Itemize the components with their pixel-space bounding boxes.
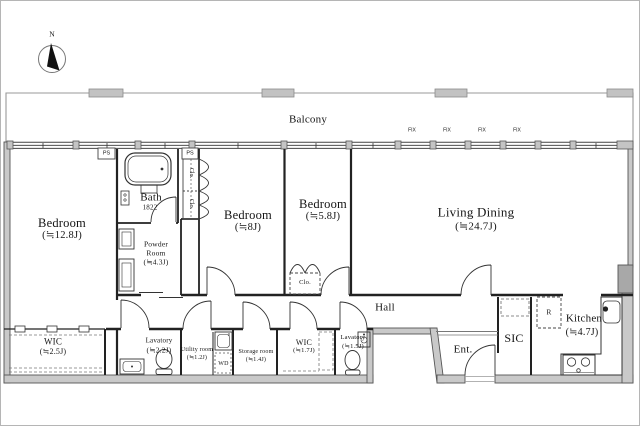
storage-room-label: Storage room — [239, 349, 274, 355]
living-dining-size: (≒24.7J) — [455, 222, 497, 233]
balcony-label: Balcony — [289, 115, 327, 126]
fix-window-label-1: FIX — [408, 129, 416, 134]
toilet-east-icon — [345, 351, 360, 376]
closet-label-2: Clo. — [188, 199, 194, 209]
bedroom-west-size: (≒12.8J) — [42, 231, 82, 242]
utility-room-label: Utility room — [181, 347, 213, 353]
bedroom-east-size: (≒5.8J) — [306, 212, 340, 223]
powder-room-size: (≒4.3J) — [144, 258, 169, 266]
wic-east-size: (≒1.7J) — [293, 348, 315, 355]
entrance-label: Ent. — [454, 345, 473, 356]
sic-label: SIC — [504, 332, 523, 344]
floor-plan: N Balcony Bedroom (≒12.8J) Bath 1822 Pow… — [0, 0, 640, 426]
fix-window-label-4: FIX — [513, 129, 521, 134]
stove-icon — [563, 355, 595, 375]
fix-window-label-3: FIX — [478, 129, 486, 134]
refrigerator-label: R — [546, 308, 551, 316]
closet-label-1: Clo. — [188, 168, 194, 178]
wic-west-label: WIC — [44, 338, 62, 347]
fix-window-label-2: FIX — [443, 129, 451, 134]
lavatory-west-sink-icon — [120, 359, 144, 374]
kitchen-size: (≒4.7J) — [566, 328, 599, 338]
utility-room-size: (≒1.2J) — [187, 355, 207, 361]
entry-step-lines — [436, 332, 498, 336]
lavatory-west-label: Lavatory — [146, 338, 173, 345]
pipe-space-label-2: PS — [186, 151, 193, 157]
hall-label: Hall — [375, 303, 395, 314]
lavatory-west-size: (≒2.2J) — [147, 346, 172, 354]
entrance-sill — [465, 376, 495, 381]
lavatory-east-size: (≒1.5J) — [342, 343, 364, 350]
lavatory-east-label: Lavatory — [340, 335, 365, 342]
bath-label: Bath — [140, 193, 162, 204]
closet-label-3: Clo. — [299, 280, 311, 287]
storage-room-size: (≒1.4J) — [246, 357, 266, 363]
bedroom-east-label: Bedroom — [299, 198, 347, 211]
bedroom-center-label: Bedroom — [224, 209, 272, 222]
living-dining-label: Living Dining — [438, 206, 515, 219]
pipe-space-label-1: PS — [103, 151, 110, 157]
compass-icon — [39, 43, 66, 73]
powder-room-label-2: Room — [146, 249, 165, 257]
sic-shelf — [501, 299, 529, 316]
bedroom-center-size: (≒8J) — [235, 223, 261, 234]
wic-west-size: (≒2.5J) — [40, 348, 67, 356]
north-label: N — [49, 30, 55, 38]
bedroom-west-label: Bedroom — [38, 217, 86, 230]
washer-dryer-label: WD — [218, 361, 228, 367]
bath-size: 1822 — [143, 205, 158, 212]
powder-room-label-1: Powder — [144, 240, 168, 248]
window-glazing — [13, 143, 617, 148]
kitchen-label: Kitchen — [566, 314, 602, 325]
exterior-walls — [4, 142, 633, 383]
utility-sink-icon — [215, 332, 232, 350]
powder-basin-icons — [119, 229, 134, 291]
interior-walls — [4, 149, 633, 375]
